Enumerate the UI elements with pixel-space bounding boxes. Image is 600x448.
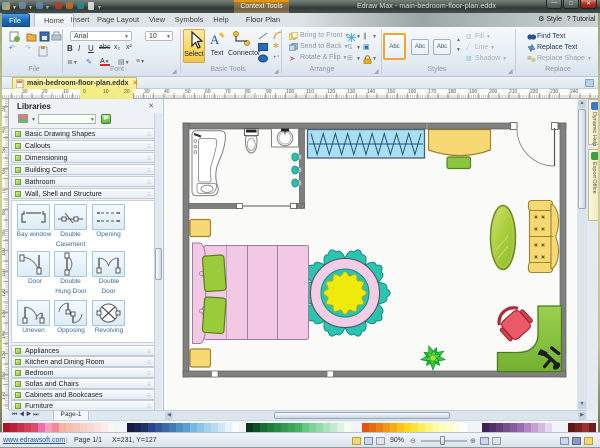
svg-text:A: A bbox=[210, 32, 220, 47]
